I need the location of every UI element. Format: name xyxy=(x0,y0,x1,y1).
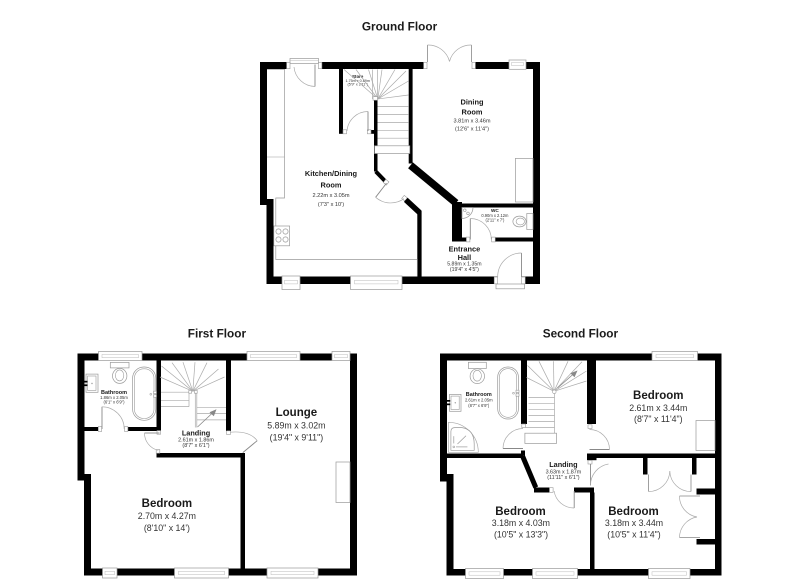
svg-text:5.89m x 3.02m: 5.89m x 3.02m xyxy=(267,420,325,430)
svg-text:(8'7" x 6'9"): (8'7" x 6'9") xyxy=(468,403,490,408)
svg-text:Bedroom: Bedroom xyxy=(633,390,683,402)
svg-text:Second Floor: Second Floor xyxy=(543,326,619,340)
svg-text:(2'11" x 7'): (2'11" x 7') xyxy=(485,217,505,222)
svg-text:(10'5" x 13'3"): (10'5" x 13'3") xyxy=(494,529,548,539)
svg-text:2.61m x 3.44m: 2.61m x 3.44m xyxy=(629,403,687,413)
svg-text:(12'6" x 11'4"): (12'6" x 11'4") xyxy=(455,126,489,132)
svg-text:Bedroom: Bedroom xyxy=(142,498,192,510)
svg-text:Landing: Landing xyxy=(549,460,577,469)
svg-text:3.81m x 3.46m: 3.81m x 3.46m xyxy=(454,119,491,125)
svg-text:(8'7" x 11'4"): (8'7" x 11'4") xyxy=(634,414,683,424)
svg-text:(19'4" x 9'11"): (19'4" x 9'11") xyxy=(270,432,324,442)
svg-text:3.18m x 3.44m: 3.18m x 3.44m xyxy=(605,518,663,528)
svg-text:(7'3" x 10'): (7'3" x 10') xyxy=(318,202,344,208)
svg-text:(19'4" x 4'5"): (19'4" x 4'5") xyxy=(450,267,479,273)
svg-text:(5'9" x 2'11"): (5'9" x 2'11") xyxy=(348,83,368,87)
svg-text:(8'10" x 14'): (8'10" x 14') xyxy=(144,523,190,533)
svg-text:Kitchen/Dining: Kitchen/Dining xyxy=(305,169,358,178)
svg-text:3.18m x 4.03m: 3.18m x 4.03m xyxy=(492,518,550,528)
svg-text:Room: Room xyxy=(462,108,483,117)
svg-text:2.70m x 4.27m: 2.70m x 4.27m xyxy=(138,511,196,521)
svg-text:Lounge: Lounge xyxy=(276,407,318,419)
svg-text:Bedroom: Bedroom xyxy=(608,506,658,518)
svg-text:Dining: Dining xyxy=(461,98,484,107)
svg-text:First Floor: First Floor xyxy=(188,326,247,340)
svg-text:Ground Floor: Ground Floor xyxy=(362,19,438,33)
svg-text:(8'7" x 6'1"): (8'7" x 6'1") xyxy=(182,443,209,449)
svg-text:(11'11" x 6'1"): (11'11" x 6'1") xyxy=(547,475,580,481)
svg-text:Room: Room xyxy=(321,180,342,189)
svg-text:(10'5" x 11'4"): (10'5" x 11'4") xyxy=(607,529,661,539)
svg-text:2.22m x 3.05m: 2.22m x 3.05m xyxy=(313,193,350,199)
svg-text:2.61m x 2.05m: 2.61m x 2.05m xyxy=(465,398,493,403)
svg-text:(6'1" x 6'9"): (6'1" x 6'9") xyxy=(103,399,125,404)
svg-text:Bedroom: Bedroom xyxy=(495,506,545,518)
svg-text:Landing: Landing xyxy=(182,428,210,437)
